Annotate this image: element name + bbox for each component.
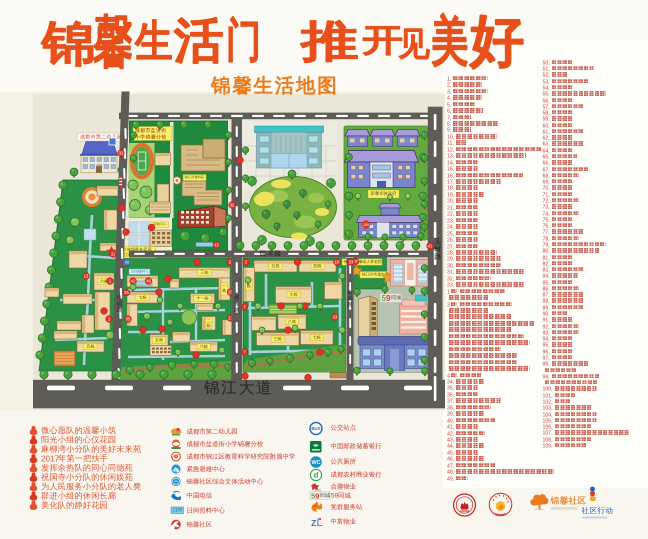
svg-text:WC: WC [312, 460, 321, 466]
svg-text:13: 13 [84, 274, 89, 279]
svg-text:59: 59 [331, 493, 339, 500]
svg-text:46: 46 [146, 279, 151, 284]
svg-text:2017: 2017 [41, 455, 60, 464]
svg-text:59: 59 [311, 491, 319, 500]
svg-text:10: 10 [335, 260, 340, 265]
svg-text:31: 31 [119, 151, 124, 156]
svg-text:M: M [125, 260, 128, 265]
svg-text:35: 35 [124, 290, 129, 295]
svg-text:43: 43 [214, 243, 219, 248]
svg-text:32: 32 [230, 203, 235, 208]
svg-text:35: 35 [126, 317, 131, 322]
svg-text:42: 42 [131, 279, 136, 284]
svg-text:159: 159 [363, 223, 369, 227]
svg-text:33: 33 [349, 260, 354, 265]
svg-text:11: 11 [111, 252, 116, 257]
svg-text:BUS: BUS [311, 426, 320, 431]
svg-text:23: 23 [333, 315, 338, 320]
svg-text:d: d [314, 471, 319, 480]
svg-text:41: 41 [428, 244, 433, 249]
svg-text:59: 59 [382, 294, 391, 303]
